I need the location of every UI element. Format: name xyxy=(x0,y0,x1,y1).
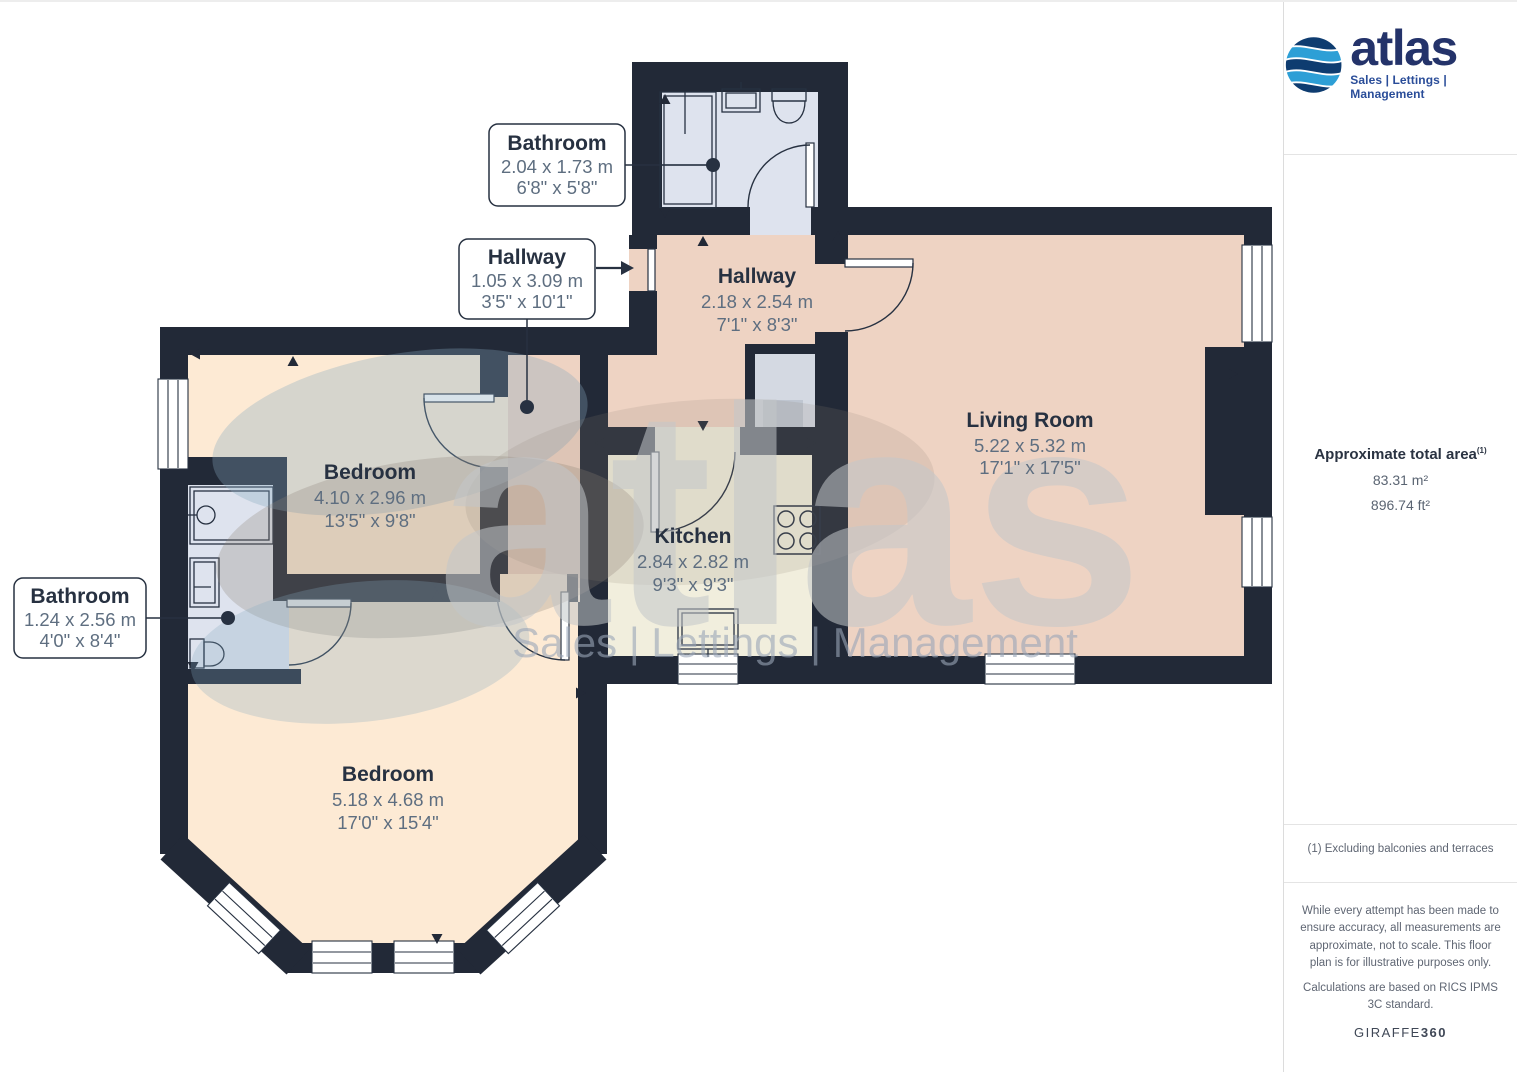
svg-text:Bathroom: Bathroom xyxy=(30,585,129,608)
giraffe360-bold: 360 xyxy=(1421,1025,1447,1040)
svg-text:13'5" x 9'8": 13'5" x 9'8" xyxy=(324,510,415,531)
svg-text:17'1" x 17'5": 17'1" x 17'5" xyxy=(979,457,1080,478)
svg-text:17'0" x 15'4": 17'0" x 15'4" xyxy=(337,812,438,833)
svg-text:1.05 x 3.09 m: 1.05 x 3.09 m xyxy=(471,270,583,291)
svg-text:2.84 x 2.82 m: 2.84 x 2.82 m xyxy=(637,551,749,572)
svg-text:2.04 x 1.73 m: 2.04 x 1.73 m xyxy=(501,156,613,177)
window-bay-bottom-right xyxy=(394,941,454,973)
svg-text:Kitchen: Kitchen xyxy=(654,525,731,548)
window-bay-bottom-left xyxy=(312,941,372,973)
watermark-tagline-text: Sales | Lettings | Management xyxy=(512,619,1078,666)
brand-logo: atlas Sales | Lettings | Management xyxy=(1284,28,1517,101)
svg-text:Hallway: Hallway xyxy=(718,265,797,288)
svg-text:9'3" x 9'3": 9'3" x 9'3" xyxy=(653,574,734,595)
total-area-block: Approximate total area(1) 83.31 m² 896.7… xyxy=(1284,446,1517,513)
total-area-title: Approximate total area(1) xyxy=(1284,446,1517,463)
page: atlas Sales | Lettings | Management Hall… xyxy=(0,0,1517,1072)
label-living-room: Living Room 5.22 x 5.32 m 17'1" x 17'5" xyxy=(966,409,1093,478)
total-area-title-text: Approximate total area xyxy=(1314,446,1477,463)
svg-text:4'0" x 8'4": 4'0" x 8'4" xyxy=(40,630,121,651)
footnote: (1) Excluding balconies and terraces xyxy=(1294,843,1507,855)
svg-text:1.24 x 2.56 m: 1.24 x 2.56 m xyxy=(24,609,136,630)
standard-text: Calculations are based on RICS IPMS 3C s… xyxy=(1298,980,1503,1015)
room-bathroom-top xyxy=(646,76,832,221)
total-area-metric: 83.31 m² xyxy=(1284,472,1517,488)
svg-text:6'8" x 5'8": 6'8" x 5'8" xyxy=(517,177,598,198)
divider xyxy=(1284,154,1517,155)
svg-text:5.22 x 5.32 m: 5.22 x 5.32 m xyxy=(974,435,1086,456)
divider xyxy=(1284,882,1517,883)
giraffe360-normal: GIRAFFE xyxy=(1354,1025,1421,1040)
floorplan-canvas: atlas Sales | Lettings | Management Hall… xyxy=(0,2,1283,1072)
floorplan-svg: atlas Sales | Lettings | Management Hall… xyxy=(0,2,1283,1072)
window-bed1-left xyxy=(158,379,188,469)
divider xyxy=(1284,824,1517,825)
logo-text: atlas Sales | Lettings | Management xyxy=(1350,28,1517,101)
svg-text:5.18 x 4.68 m: 5.18 x 4.68 m xyxy=(332,789,444,810)
svg-text:Bathroom: Bathroom xyxy=(507,132,606,155)
brand-name: atlas xyxy=(1350,28,1456,69)
brand-tagline: Sales | Lettings | Management xyxy=(1350,73,1517,101)
svg-text:4.10 x 2.96 m: 4.10 x 2.96 m xyxy=(314,487,426,508)
svg-text:7'1" x 8'3": 7'1" x 8'3" xyxy=(717,314,798,335)
label-bedroom-top: Bedroom 4.10 x 2.96 m 13'5" x 9'8" xyxy=(314,461,426,531)
window-living-east-lower xyxy=(1242,517,1272,587)
giraffe360-logo: GIRAFFE360 xyxy=(1284,1025,1517,1040)
total-area-superscript: (1) xyxy=(1477,446,1487,455)
svg-text:2.18 x 2.54 m: 2.18 x 2.54 m xyxy=(701,291,813,312)
window-living-east-upper xyxy=(1242,245,1272,342)
svg-text:3'5" x 10'1": 3'5" x 10'1" xyxy=(481,291,572,312)
label-bedroom-bottom: Bedroom 5.18 x 4.68 m 17'0" x 15'4" xyxy=(332,763,444,833)
total-area-imperial: 896.74 ft² xyxy=(1284,497,1517,513)
globe-icon xyxy=(1284,34,1343,96)
svg-text:Hallway: Hallway xyxy=(488,246,567,269)
svg-text:Bedroom: Bedroom xyxy=(342,763,434,786)
svg-text:Living Room: Living Room xyxy=(966,409,1093,432)
svg-text:Bedroom: Bedroom xyxy=(324,461,416,484)
sidebar: atlas Sales | Lettings | Management Appr… xyxy=(1283,2,1517,1072)
disclaimer-text: While every attempt has been made to ens… xyxy=(1298,903,1503,972)
